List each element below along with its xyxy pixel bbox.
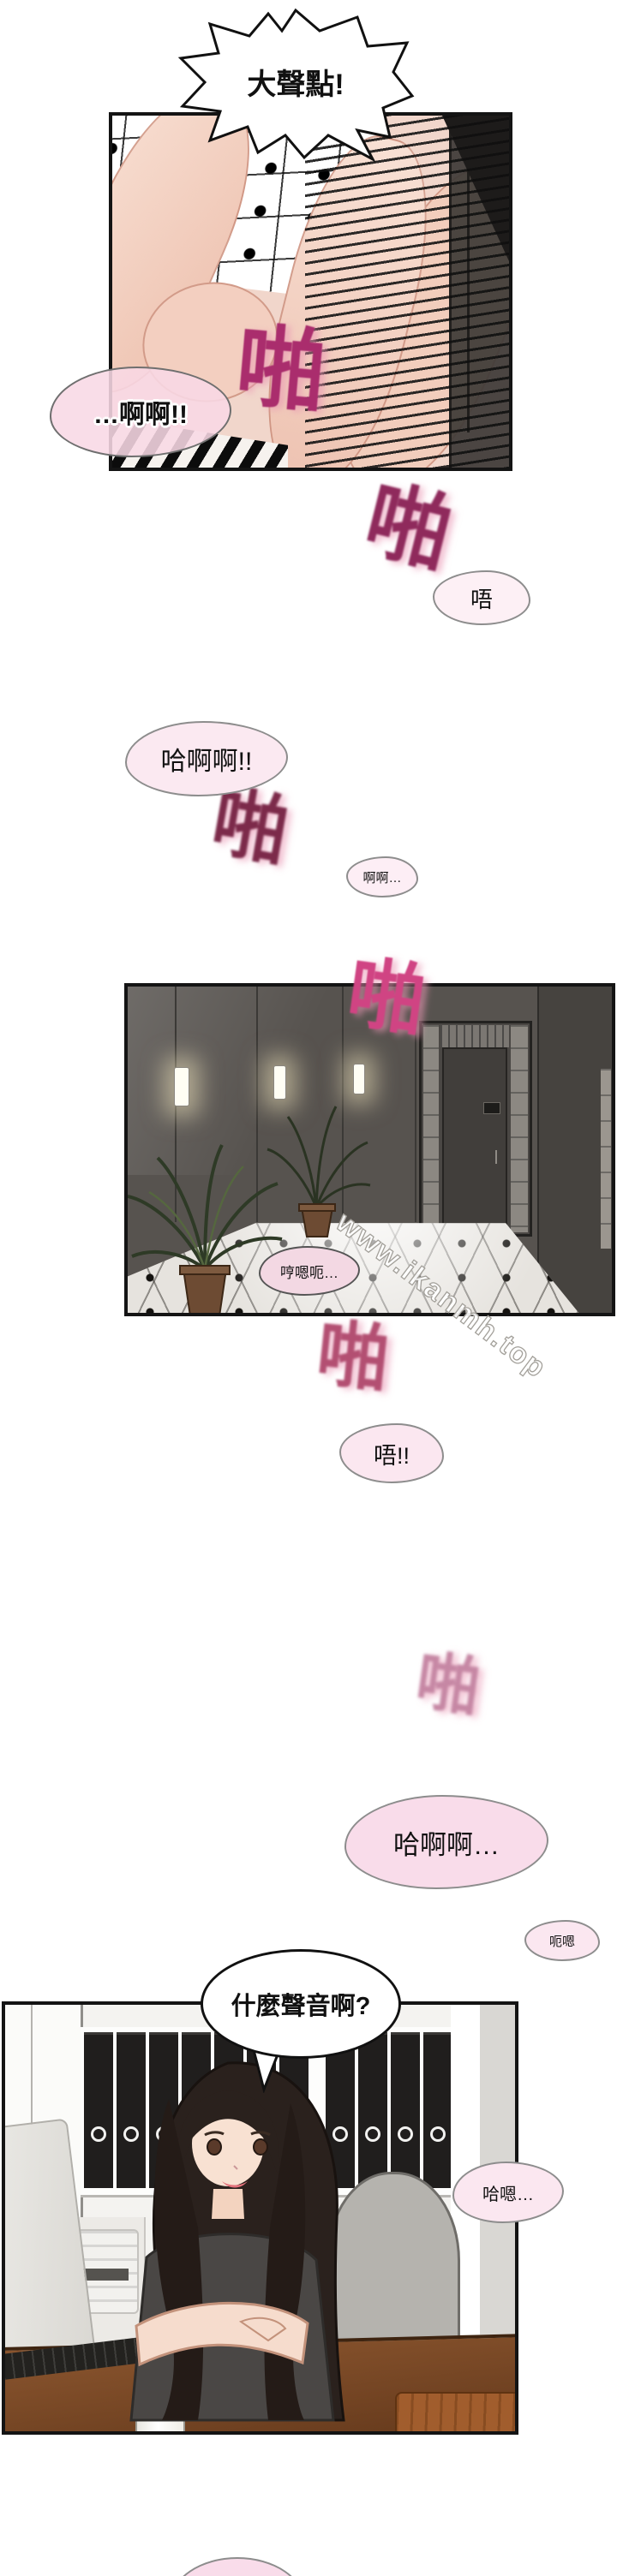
speed-lines — [305, 116, 512, 471]
wall-lamp — [174, 1067, 189, 1106]
door-handle — [495, 1150, 497, 1164]
speech-bubble-hahn: 哈嗯… — [452, 2162, 564, 2223]
speech-bubble-ehng: 呃嗯 — [524, 1920, 600, 1961]
binder — [423, 2032, 452, 2188]
sfx-slap-1: 啪 — [233, 322, 330, 419]
speech-bubble-partial — [170, 2557, 305, 2576]
sfx-slap-4: 啪 — [343, 954, 430, 1041]
binder — [391, 2032, 420, 2188]
speech-bubble-shout: 大聲點! — [176, 7, 416, 165]
sfx-slap-6: 啪 — [412, 1649, 484, 1720]
speech-bubble-wu: 唔 — [433, 570, 530, 625]
sfx-slap-5: 啪 — [314, 1317, 392, 1396]
door-keypad — [483, 1102, 500, 1114]
wall-lamp — [273, 1065, 286, 1100]
door-sidelight-right — [511, 1025, 528, 1232]
wooden-box — [395, 2392, 518, 2435]
sfx-slap-3: 啪 — [207, 784, 294, 871]
speech-bubble-haah2: 哈啊啊… — [344, 1795, 548, 1889]
door-transom — [440, 1025, 509, 1047]
speech-bubble-question: 什麼聲音啊? — [201, 1949, 401, 2059]
comic-page: 大聲點! …啊啊!! 啪 啪 唔 哈啊啊!! 啪 啊啊… — [0, 0, 617, 2576]
speech-bubble-haah: 哈啊啊!! — [125, 721, 288, 796]
door-slab — [442, 1047, 507, 1234]
sfx-slap-2: 啪 — [358, 476, 460, 578]
wall-lamp — [353, 1064, 365, 1094]
far-sidelight — [601, 1069, 611, 1249]
woman-at-desk — [87, 2039, 369, 2435]
speech-bubble-wu2: 唔!! — [339, 1423, 444, 1483]
shout-text: 大聲點! — [176, 61, 416, 103]
hallway-door — [419, 1021, 532, 1237]
speech-bubble-ahah: 啊啊… — [346, 856, 418, 897]
wall-edge-strip — [613, 987, 615, 1316]
door-sidelight-left — [423, 1025, 439, 1232]
